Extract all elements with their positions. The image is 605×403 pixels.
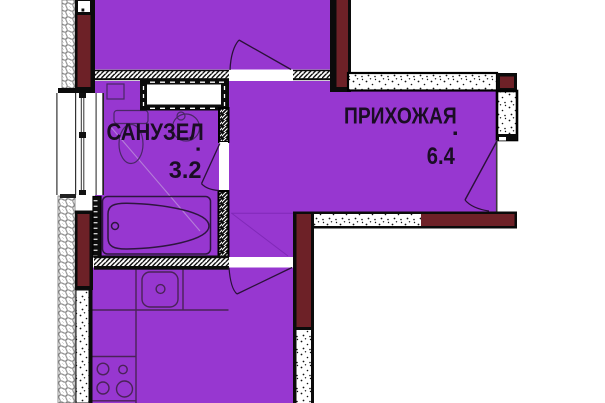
svg-text:3.2: 3.2	[169, 156, 202, 184]
svg-text:6.4: 6.4	[427, 142, 456, 169]
svg-text:САНУЗЕЛ: САНУЗЕЛ	[107, 118, 204, 145]
svg-text:ПРИХОЖАЯ: ПРИХОЖАЯ	[344, 103, 457, 129]
